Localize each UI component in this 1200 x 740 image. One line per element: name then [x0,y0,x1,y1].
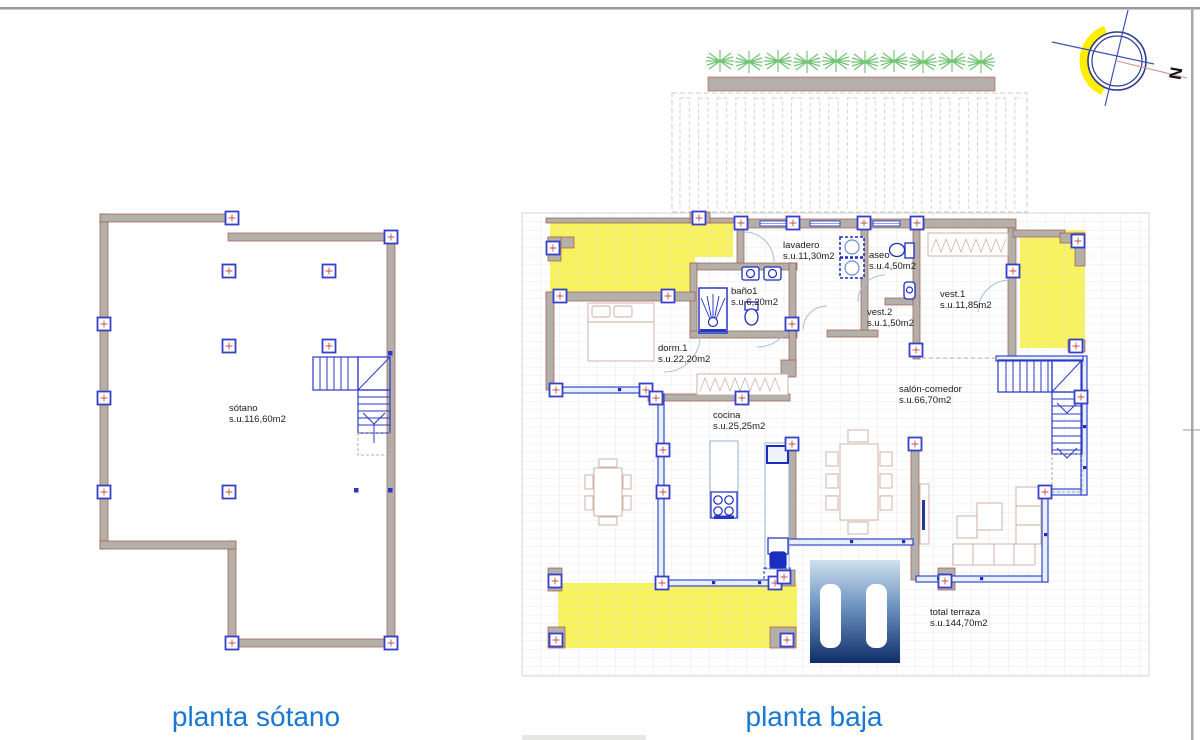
room-label-aseo: aseo s.u.4,50m2 [869,250,916,272]
caption-planta-sotano: planta sótano [172,701,340,733]
pergola [672,77,1027,212]
room-label-cocina: cocina s.u.25,25m2 [713,410,765,432]
pillars-sotano [98,212,398,650]
room-label-lavadero: lavadero s.u.11,30m2 [783,240,835,262]
room-label-vest2: vest.2 s.u.1,50m2 [867,307,914,329]
room-label-vest1: vest.1 s.u.11,85m2 [940,289,992,311]
caption-planta-baja: planta baja [745,701,882,733]
floorplan-sheet: N sótano s.u.116,60m2 lavadero s.u.11,30… [0,0,1200,740]
stairs-sotano [313,357,390,455]
compass: N [1052,10,1187,106]
plants [706,50,995,73]
walls-sotano [100,214,395,647]
pool [810,560,900,663]
room-label-salon-comedor: salón-comedor s.u.66,70m2 [899,384,962,406]
room-label-bano1: baño1 s.u.6,20m2 [731,286,778,308]
floorplan-drawing: N [0,0,1200,740]
compass-north-label: N [1165,66,1186,81]
room-label-total-terraza: total terraza s.u.144,70m2 [930,607,988,629]
room-label-sotano: sótano s.u.116,60m2 [229,403,286,425]
room-label-dorm1: dorm.1 s.u.22,20m2 [658,343,710,365]
